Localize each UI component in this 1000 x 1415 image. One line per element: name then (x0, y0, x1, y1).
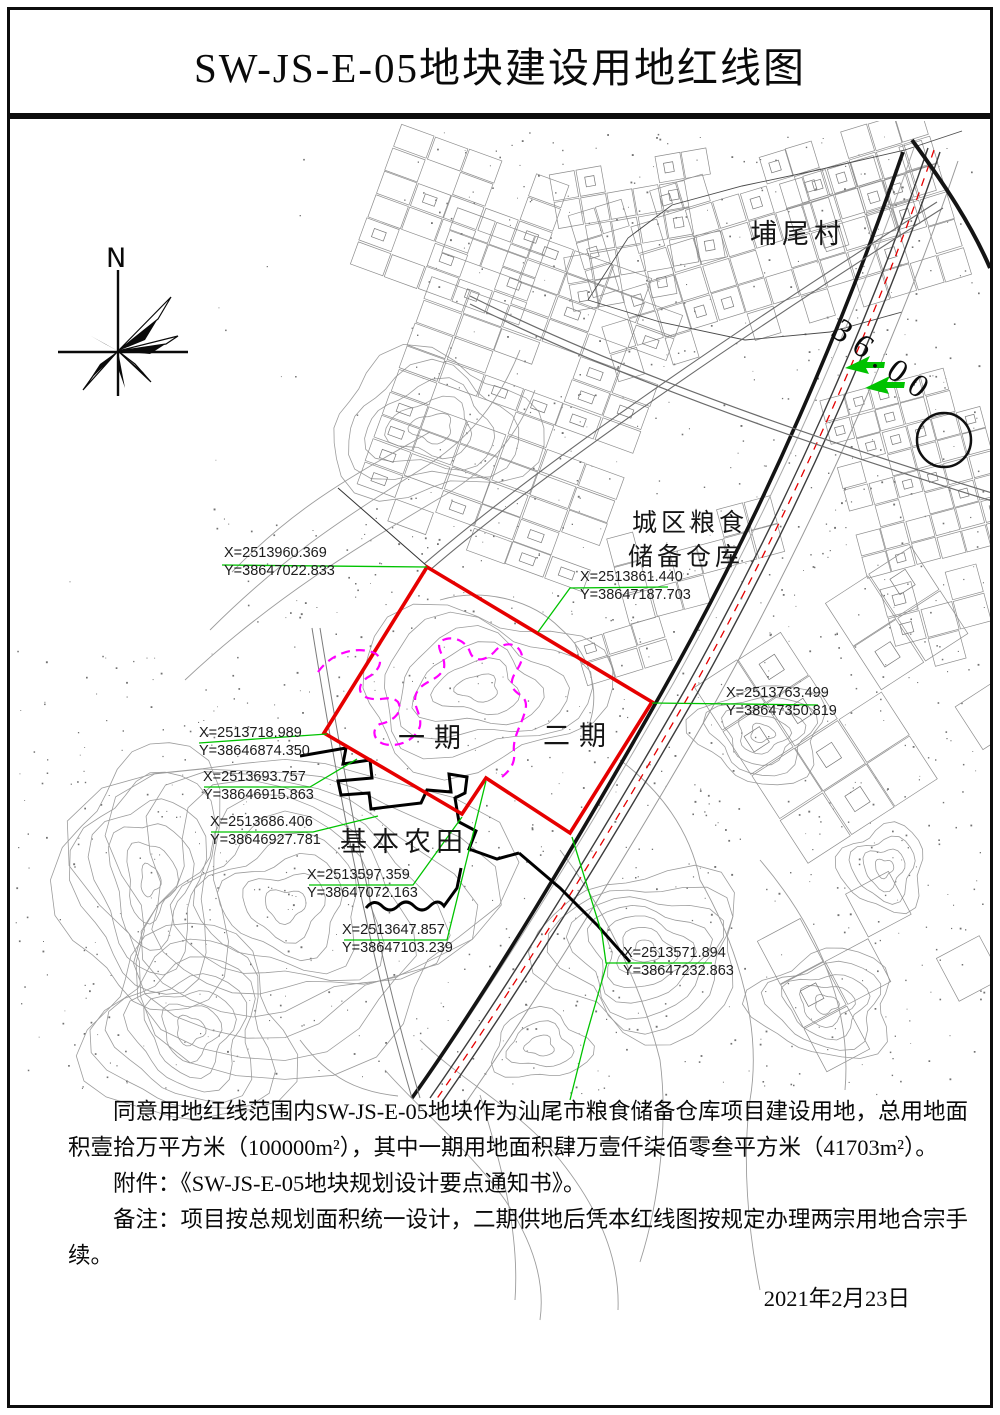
coordinate-label: X=2513571.894Y=38647232.863 (623, 944, 734, 980)
coordinate-label: X=2513861.440Y=38647187.703 (580, 568, 691, 604)
phase2-label: 二期 (543, 714, 615, 753)
coordinate-label: X=2513960.369Y=38647022.833 (224, 544, 335, 580)
phase-divider-line (318, 638, 526, 780)
drawing-sheet: N SW-JS-E-05地块建设用地红线图 埔尾村 36.00 城区粮食 储备仓… (0, 0, 1000, 1415)
warehouse-label-line1: 城区粮食 (632, 503, 748, 539)
compass-rose-icon (50, 262, 200, 412)
note-attachment: 附件：《SW-JS-E-05地块规划设计要点通知书》。 (68, 1166, 974, 1202)
coordinate-label: X=2513647.857Y=38647103.239 (342, 921, 453, 957)
coordinate-label: X=2513686.406Y=38646927.781 (210, 813, 321, 849)
coordinate-label: X=2513693.757Y=38646915.863 (203, 768, 314, 804)
coordinate-label: X=2513763.499Y=38647350.819 (726, 684, 837, 720)
date-label: 2021年2月23日 (764, 1281, 910, 1313)
note-remark: 备注：项目按总规划面积统一设计，二期供地后凭本红线图按规定办理两宗用地合宗手续。 (68, 1202, 974, 1274)
village-label: 埔尾村 (750, 212, 846, 251)
notes-block: 同意用地红线范围内SW-JS-E-05地块作为汕尾市粮食储备仓库项目建设用地，总… (68, 1094, 974, 1274)
coordinate-label: X=2513597.359Y=38647072.163 (307, 866, 418, 902)
railway-arc (912, 140, 990, 268)
coordinate-label: X=2513718.989Y=38646874.350 (199, 724, 310, 760)
drawing-title: SW-JS-E-05地块建设用地红线图 (10, 34, 990, 94)
farmland-label: 基本农田 (340, 820, 468, 859)
note-paragraph: 同意用地红线范围内SW-JS-E-05地块作为汕尾市粮食储备仓库项目建设用地，总… (68, 1094, 974, 1166)
title-separator (7, 113, 993, 119)
phase1-label: 一期 (398, 716, 470, 755)
terrain-texture-layer (16, 107, 1000, 1119)
